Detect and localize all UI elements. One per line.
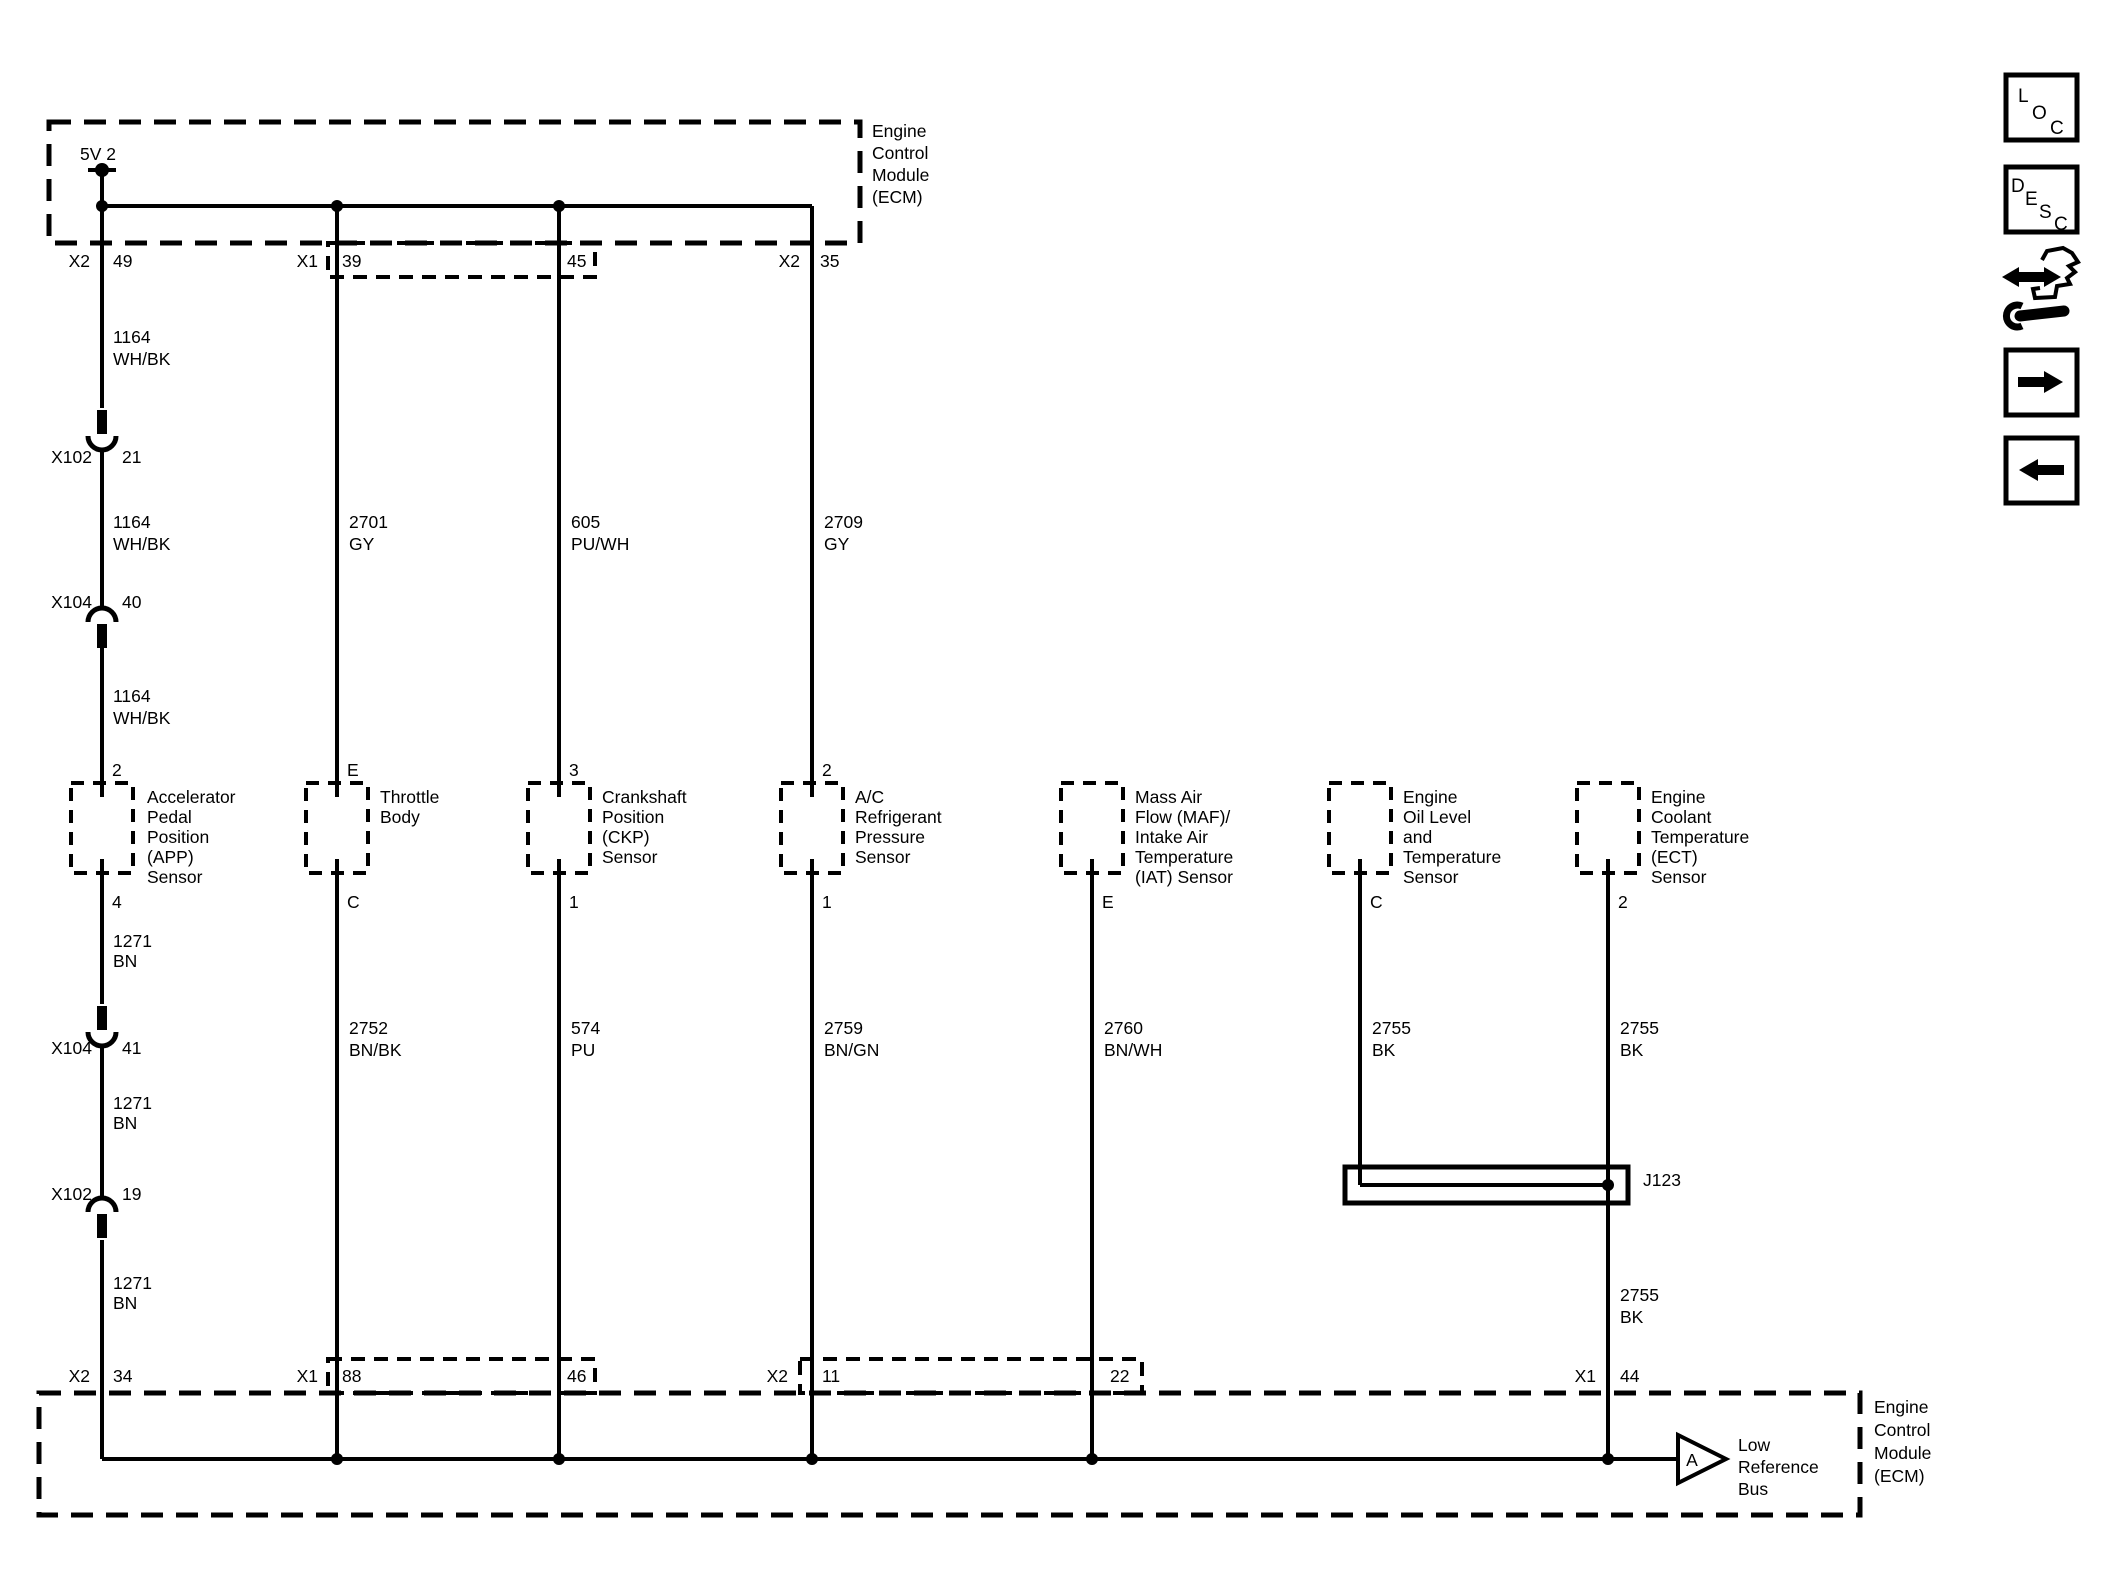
connector-cavity: 19 — [122, 1184, 141, 1204]
pin-88-number: 88 — [342, 1366, 361, 1386]
desc-letter-c: C — [2054, 214, 2068, 235]
loc-letter-c: C — [2050, 118, 2064, 139]
loc-letter-o: O — [2032, 103, 2047, 124]
sensor-maf-label-line: Flow (MAF)/ — [1135, 807, 1230, 827]
sensor-throttle-label-line: Body — [380, 807, 420, 827]
sensor-oil-label-line: Temperature — [1403, 847, 1501, 867]
connector-female-cup — [88, 436, 116, 450]
sensor-oil-label-line: Engine — [1403, 787, 1458, 807]
sensor-throttle-label-line: Throttle — [380, 787, 439, 807]
sensor-throttle-pin-top: E — [347, 760, 359, 780]
wire-2755-c-circuit: 2755 — [1620, 1285, 1659, 1305]
pin-35-number: 35 — [820, 251, 839, 271]
inline-connector-x104-40: X104 40 — [51, 592, 142, 648]
ecm-bottom-label-line4: (ECM) — [1874, 1466, 1925, 1486]
next-page-button[interactable] — [2006, 350, 2077, 415]
loc-button[interactable]: L O C — [2006, 75, 2077, 140]
wire-605-circuit: 605 — [571, 512, 600, 532]
bus-junction-dot — [1086, 1453, 1098, 1465]
wire-2759-circuit: 2759 — [824, 1018, 863, 1038]
pin-88-connector: X1 — [297, 1366, 318, 1386]
ecm-top-label-line4: (ECM) — [872, 187, 923, 207]
sensor-app-pin-bottom: 4 — [112, 892, 122, 912]
sensor-oil-pin-bottom: C — [1370, 892, 1383, 912]
sensor-ac-label-line: Refrigerant — [855, 807, 942, 827]
wire-1164-c-color: WH/BK — [113, 708, 171, 728]
wire-2759-color: BN/GN — [824, 1040, 879, 1060]
sidebar-nav: L O C D E S C — [2002, 75, 2078, 503]
pin-49-connector: X2 — [69, 251, 90, 271]
connector-cavity: 41 — [122, 1038, 141, 1058]
sensor-ect-label-line: Sensor — [1651, 867, 1707, 887]
sensor-ect-label-line: (ECT) — [1651, 847, 1698, 867]
sensor-app-label-line: (APP) — [147, 847, 194, 867]
wire-605-color: PU/WH — [571, 534, 629, 554]
connector-female-cup — [88, 1198, 116, 1212]
ecm-top-label-line2: Control — [872, 143, 928, 163]
connector-female-cup — [88, 1032, 116, 1046]
sensor-app: 2 4 Accelerator Pedal Position (APP) Sen… — [71, 760, 236, 912]
sensor-ect-label-line: Temperature — [1651, 827, 1749, 847]
connector-cavity: 21 — [122, 447, 141, 467]
pin-11-connector: X2 — [767, 1366, 788, 1386]
wire-1164-a-color: WH/BK — [113, 349, 171, 369]
wire-2755-c-color: BK — [1620, 1307, 1644, 1327]
bus-junction-dot — [806, 1453, 818, 1465]
wire-2760-circuit: 2760 — [1104, 1018, 1143, 1038]
sensor-ac-pressure: 2 1 A/C Refrigerant Pressure Sensor — [781, 760, 942, 912]
pin-39-number: 39 — [342, 251, 361, 271]
desc-button[interactable]: D E S C — [2006, 167, 2077, 235]
previous-page-button[interactable] — [2006, 438, 2077, 503]
sensor-maf-pin-bottom: E — [1102, 892, 1114, 912]
splice-junction-dot — [1602, 1179, 1614, 1191]
wire-1271-a-circuit: 1271 — [113, 931, 152, 951]
sensor-oil-label-line: and — [1403, 827, 1432, 847]
wire-1271-b-color: BN — [113, 1113, 137, 1133]
ecm-bottom-dashed-box — [39, 1393, 1860, 1515]
ecm-bottom-connector-sub-box-x1 — [328, 1359, 595, 1393]
wire-574-circuit: 574 — [571, 1018, 600, 1038]
wire-2760-color: BN/WH — [1104, 1040, 1162, 1060]
pin-35-connector: X2 — [779, 251, 800, 271]
ecm-top-label-line3: Module — [872, 165, 929, 185]
sensor-ckp-label-line: Position — [602, 807, 664, 827]
low-ref-label-line2: Reference — [1738, 1457, 1819, 1477]
sensor-app-pin-top: 2 — [112, 760, 122, 780]
sensor-ckp-label-line: Crankshaft — [602, 787, 687, 807]
bus-junction-dot — [1602, 1453, 1614, 1465]
pin-44-number: 44 — [1620, 1366, 1640, 1386]
sensor-oil-label-line: Sensor — [1403, 867, 1459, 887]
inline-connector-x102-21: X102 21 — [51, 410, 141, 467]
ecm-bottom-label-line2: Control — [1874, 1420, 1930, 1440]
sensor-ckp-pin-bottom: 1 — [569, 892, 579, 912]
pin-46-number: 46 — [567, 1366, 586, 1386]
sensor-maf-label-line: Temperature — [1135, 847, 1233, 867]
bus-junction-dot — [331, 1453, 343, 1465]
connector-female-cup — [88, 608, 116, 622]
wire-1164-b-color: WH/BK — [113, 534, 171, 554]
desc-letter-s: S — [2039, 202, 2052, 223]
wire-574-color: PU — [571, 1040, 595, 1060]
sensor-ect-label-line: Coolant — [1651, 807, 1711, 827]
connector-cavity: 40 — [122, 592, 142, 612]
ecm-bottom-label-line1: Engine — [1874, 1397, 1929, 1417]
wire-1164-b-circuit: 1164 — [113, 512, 151, 532]
sensor-maf-iat: E Mass Air Flow (MAF)/ Intake Air Temper… — [1061, 783, 1233, 912]
sensor-app-label-line: Accelerator — [147, 787, 236, 807]
pin-22-number: 22 — [1110, 1366, 1129, 1386]
sensor-ckp-pin-top: 3 — [569, 760, 579, 780]
ecm-top-dashed-box — [49, 122, 860, 243]
wire-1164-a-circuit: 1164 — [113, 327, 151, 347]
sensor-oil-label-line: Oil Level — [1403, 807, 1471, 827]
ecm-top-pin-row: X2 49 X1 39 45 X2 35 — [69, 243, 840, 277]
connector-name: X102 — [51, 447, 92, 467]
pin-39-connector: X1 — [297, 251, 318, 271]
sensor-ac-pin-bottom: 1 — [822, 892, 832, 912]
sensor-ac-label-line: Sensor — [855, 847, 911, 867]
wire-2701-circuit: 2701 — [349, 512, 388, 532]
connector-name: X102 — [51, 1184, 92, 1204]
pin-45-number: 45 — [567, 251, 586, 271]
sensor-ckp: 3 1 Crankshaft Position (CKP) Sensor — [528, 760, 687, 912]
sensor-maf-label-line: Intake Air — [1135, 827, 1208, 847]
ecm-bottom-label-line3: Module — [1874, 1443, 1931, 1463]
sensor-ect-label-line: Engine — [1651, 787, 1706, 807]
wire-2755-a-circuit: 2755 — [1372, 1018, 1411, 1038]
sensor-throttle-body: E C Throttle Body — [306, 760, 439, 912]
splice-label: J123 — [1643, 1170, 1681, 1190]
wire-2755-b-circuit: 2755 — [1620, 1018, 1659, 1038]
ecm-bottom-module: A Low Reference Bus Engine Control Modul… — [39, 1393, 1931, 1515]
sensor-ect: 2 Engine Coolant Temperature (ECT) Senso… — [1577, 783, 1749, 912]
wire-2709-color: GY — [824, 534, 850, 554]
wrench-handle — [2020, 311, 2064, 316]
double-arrow-left-head — [2002, 267, 2019, 287]
sensor-ckp-label-line: (CKP) — [602, 827, 650, 847]
bus-arrow-letter: A — [1686, 1450, 1698, 1470]
wire-2755-b-color: BK — [1620, 1040, 1644, 1060]
bus-junction-dot — [553, 1453, 565, 1465]
wire-1271-b-circuit: 1271 — [113, 1093, 152, 1113]
wire-1271-c-color: BN — [113, 1293, 137, 1313]
power-tap-label: 5V 2 — [80, 144, 116, 164]
sensor-ac-label-line: A/C — [855, 787, 884, 807]
sensor-ect-pin-bottom: 2 — [1618, 892, 1628, 912]
sensor-ac-pin-top: 2 — [822, 760, 832, 780]
ecm-top-module: Engine Control Module (ECM) 5V 2 — [49, 121, 929, 243]
low-ref-label-line3: Bus — [1738, 1479, 1768, 1499]
desc-letter-e: E — [2025, 189, 2038, 210]
sensor-ckp-label-line: Sensor — [602, 847, 658, 867]
sensor-maf-label-line: (IAT) Sensor — [1135, 867, 1233, 887]
inline-connector-x102-19: X102 19 — [51, 1184, 141, 1238]
wiring-diagram-page: Engine Control Module (ECM) 5V 2 X2 49 X… — [0, 0, 2118, 1594]
desc-letter-d: D — [2011, 176, 2025, 197]
pin-34-number: 34 — [113, 1366, 133, 1386]
ecm-bottom-pin-row: X2 34 X1 88 46 X2 11 22 X1 44 — [69, 1359, 1640, 1393]
sensor-app-label-line: Sensor — [147, 867, 203, 887]
pin-34-connector: X2 — [69, 1366, 90, 1386]
low-ref-label-line1: Low — [1738, 1435, 1770, 1455]
connector-name: X104 — [51, 592, 92, 612]
loc-letter-l: L — [2018, 86, 2029, 107]
ecm-top-connector-sub-box — [328, 243, 595, 277]
wire-2701-color: GY — [349, 534, 375, 554]
ecm-top-label-line1: Engine — [872, 121, 927, 141]
wire-2752-circuit: 2752 — [349, 1018, 388, 1038]
sensor-ac-label-line: Pressure — [855, 827, 925, 847]
pin-11-number: 11 — [822, 1366, 840, 1386]
wiring-diagram: Engine Control Module (ECM) 5V 2 X2 49 X… — [0, 0, 2118, 1594]
wire-2709-circuit: 2709 — [824, 512, 863, 532]
inline-connector-x104-41: X104 41 — [51, 1006, 141, 1058]
wire-2752-color: BN/BK — [349, 1040, 402, 1060]
wire-1271-a-color: BN — [113, 951, 137, 971]
sensor-throttle-pin-bottom: C — [347, 892, 360, 912]
sensor-maf-label-line: Mass Air — [1135, 787, 1202, 807]
pin-44-connector: X1 — [1575, 1366, 1596, 1386]
wire-1164-c-circuit: 1164 — [113, 686, 151, 706]
wires-top-section: 1164 WH/BK 1164 WH/BK 1164 WH/BK 2701 GY… — [102, 170, 863, 797]
wire-2755-a-color: BK — [1372, 1040, 1396, 1060]
sensor-app-label-line: Position — [147, 827, 209, 847]
connector-name: X104 — [51, 1038, 92, 1058]
harness-repair-button[interactable] — [2002, 248, 2078, 327]
wire-1271-c-circuit: 1271 — [113, 1273, 152, 1293]
sensor-oil-level: C Engine Oil Level and Temperature Senso… — [1329, 783, 1501, 912]
pin-49-number: 49 — [113, 251, 132, 271]
sensor-app-label-line: Pedal — [147, 807, 192, 827]
